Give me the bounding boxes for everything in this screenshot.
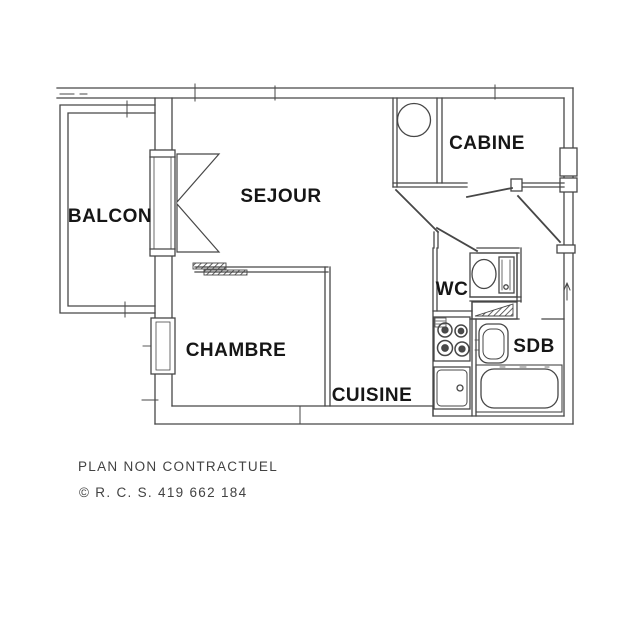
toilet bbox=[470, 253, 517, 297]
water-heater bbox=[398, 104, 431, 137]
room-label-sdb: SDB bbox=[513, 336, 555, 357]
room-label-cabine: CABINE bbox=[449, 133, 525, 154]
stove bbox=[434, 317, 470, 361]
room-label-cuisine: CUISINE bbox=[332, 385, 413, 406]
bathtub bbox=[476, 365, 562, 412]
sliding-door bbox=[193, 263, 247, 275]
floor-plan: BALCON SEJOUR CABINE WC SDB CHAMBRE CUIS… bbox=[0, 0, 640, 640]
footer-disclaimer: PLAN NON CONTRACTUEL bbox=[78, 459, 278, 474]
footer: PLAN NON CONTRACTUEL © R. C. S. 419 662 … bbox=[78, 459, 278, 500]
floor-plan-page: BALCON SEJOUR CABINE WC SDB CHAMBRE CUIS… bbox=[0, 0, 640, 640]
room-label-chambre: CHAMBRE bbox=[186, 340, 287, 361]
toilet-bowl bbox=[472, 260, 496, 289]
entrance-door-leaf bbox=[518, 196, 560, 242]
door-leaf-upper bbox=[177, 154, 219, 202]
kitchen-sink bbox=[434, 367, 470, 409]
north-arrow bbox=[564, 283, 570, 300]
hall-door-leaf bbox=[396, 190, 438, 232]
chambre-window bbox=[143, 318, 175, 374]
french-door bbox=[150, 150, 219, 256]
room-label-wc: WC bbox=[436, 279, 469, 300]
right-wall-window bbox=[560, 148, 577, 176]
toilet-tank bbox=[499, 257, 514, 293]
footer-registration: © R. C. S. 419 662 184 bbox=[79, 485, 247, 500]
shelf bbox=[472, 302, 517, 319]
wc-door-leaf bbox=[437, 228, 477, 251]
door-leaf-lower bbox=[177, 204, 219, 252]
room-label-sejour: SEJOUR bbox=[240, 186, 321, 207]
room-label-balcon: BALCON bbox=[68, 206, 152, 227]
washbasin bbox=[475, 324, 508, 363]
cabine-door-leaf bbox=[467, 188, 512, 197]
door-leaves bbox=[396, 188, 560, 251]
